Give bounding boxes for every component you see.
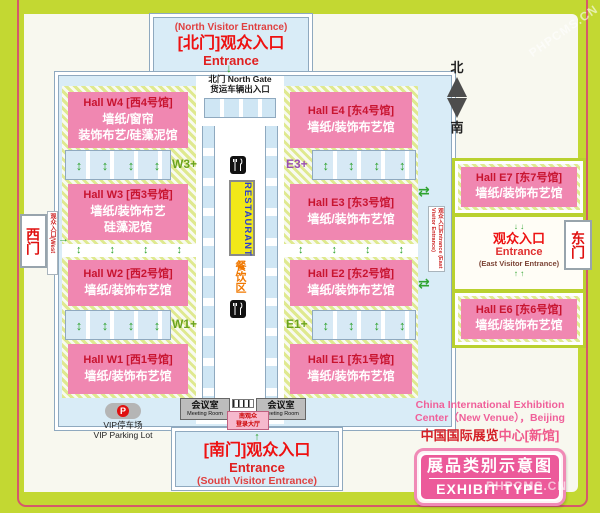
direction-arrow-icon: ↕: [323, 159, 330, 172]
hall-w4: Hall W4 [西4号馆] 墙纸/窗帘 装饰布艺/硅藻泥馆: [68, 92, 188, 148]
compass: 北 南: [442, 60, 472, 135]
hall-w1: Hall W1 [西1号馆] 墙纸/装饰布艺馆: [68, 344, 188, 394]
hall-e6-title: Hall E6 [东6号馆]: [461, 303, 577, 318]
north-arrow-icon: [447, 77, 467, 97]
south-arrow-icon: [447, 98, 467, 118]
direction-arrow-icon: ↕: [399, 319, 406, 332]
north-gate-arrow-icon: ↓: [226, 62, 232, 74]
hall-e3-title: Hall E3 [东3号馆]: [290, 195, 412, 211]
turnstile-row: [232, 399, 254, 408]
direction-arrow-icon: ↕: [154, 319, 161, 332]
south-registration-line2: 登录大厅: [228, 421, 268, 429]
stall-lane-left: [202, 126, 215, 398]
meeting-room-cn: 会议室: [257, 400, 305, 411]
hall-w3-sub2: 硅藻泥馆: [68, 219, 188, 235]
north-entrance-subtitle: (North Visitor Entrance): [153, 22, 309, 34]
hall-e6-block: Hall E6 [东6号馆] 墙纸/装饰布艺馆: [452, 290, 586, 348]
hall-e2-title: Hall E2 [东2号馆]: [290, 266, 412, 282]
direction-arrow-icon: ↕: [348, 319, 355, 332]
south-registration-line1: 南观众: [228, 413, 268, 421]
east-visitor-entrance-note: 观众入口Entrance (East Visitor Entrance): [428, 206, 445, 272]
label-w1-plus: W1+: [172, 317, 197, 331]
west-corridor-lower: ↕ ↕ ↕ ↕: [65, 310, 171, 340]
compass-south-label: 南: [442, 120, 472, 135]
hall-e1: Hall E1 [东1号馆] 墙纸/装饰布艺馆: [290, 344, 412, 394]
east-entrance-arrows-icon: ↑ ↑: [458, 269, 580, 278]
hall-e7: Hall E7 [东7号馆] 墙纸/装饰布艺馆: [461, 167, 577, 207]
hall-w3: Hall W3 [西3号馆] 墙纸/装饰布艺 硅藻泥馆: [68, 184, 188, 240]
hall-e6: Hall E6 [东6号馆] 墙纸/装饰布艺馆: [461, 299, 577, 339]
west-entrance-arrow-icon: →: [58, 234, 69, 245]
direction-arrow-icon: ↕: [298, 245, 304, 256]
watermark: PHPCMS.CN: [486, 479, 567, 493]
restaurant-icon: [230, 156, 246, 179]
label-e3-plus: E3+: [286, 157, 308, 171]
west-gate-sign: 西门: [20, 214, 47, 268]
venue-name-cn: 中国国际展览中心[新馆]: [402, 427, 578, 445]
hall-e4: Hall E4 [东4号馆] 墙纸/装饰布艺馆: [290, 92, 412, 148]
direction-arrow-icon: ↕: [374, 159, 381, 172]
east-gate-sign: 东门: [564, 220, 592, 270]
south-registration-hall: 南观众 登录大厅: [227, 411, 269, 430]
south-entrance-label: Entrance: [175, 460, 339, 475]
hall-w1-title: Hall W1 [西1号馆]: [68, 352, 188, 368]
hall-w4-title: Hall W4 [西4号馆]: [68, 95, 188, 111]
direction-arrow-icon: ↕: [374, 319, 381, 332]
hall-w4-sub2: 装饰布艺/硅藻泥馆: [68, 127, 188, 143]
exhibit-type-badge: 展品类别示意图 EXHIBIT TYPE: [414, 448, 566, 506]
central-corridor: RESTAURANT 餐饮区: [196, 76, 284, 424]
vip-parking-cn: VIP停车场: [82, 420, 164, 430]
hall-e7-block: Hall E7 [东7号馆] 墙纸/装饰布艺馆: [452, 158, 586, 216]
hall-e6-sub1: 墙纸/装饰布艺馆: [461, 318, 577, 333]
direction-arrow-icon: ↕: [76, 159, 83, 172]
direction-arrow-icon: ↕: [399, 245, 405, 256]
venue-name-cn-pink: 中心[新馆]: [499, 428, 560, 443]
restaurant-icon: [230, 300, 246, 323]
hall-e1-title: Hall E1 [东1号馆]: [290, 352, 412, 368]
venue-name-en1: China International Exhibition: [402, 399, 578, 412]
hall-e3-sub1: 墙纸/装饰布艺馆: [290, 211, 412, 227]
east-corridor-lower: ↕ ↕ ↕ ↕: [312, 310, 416, 340]
west-cross-aisle: ↕ ↕ ↕ ↕: [62, 244, 196, 257]
restaurant-sign: RESTAURANT: [229, 180, 255, 256]
hall-e4-title: Hall E4 [东4号馆]: [290, 103, 412, 119]
hall-e2-sub1: 墙纸/装饰布艺馆: [290, 282, 412, 298]
compass-north-label: 北: [442, 60, 472, 75]
east-entrance-cn: 观众入口: [458, 231, 580, 246]
south-entrance-arrow-icon: ↑: [175, 432, 339, 442]
badge-title-cn: 展品类别示意图: [421, 457, 559, 477]
meeting-room-left: 会议室 Meeting Room: [180, 398, 230, 420]
south-entrance-title: [南门]观众入口: [175, 442, 339, 460]
venue-name-cn-red: 中国国际展览: [421, 428, 499, 443]
venue-caption: China International Exhibition Center（Ne…: [402, 399, 578, 445]
food-zone-label: 餐饮区: [233, 260, 246, 293]
hall-w4-sub1: 墙纸/窗帘: [68, 111, 188, 127]
hall-w3-sub1: 墙纸/装饰布艺: [68, 203, 188, 219]
direction-arrow-icon: ↕: [102, 159, 109, 172]
hall-e4-sub1: 墙纸/装饰布艺馆: [290, 119, 412, 135]
vip-parking-en: VIP Parking Lot: [82, 430, 164, 440]
direction-arrow-icon: ↕: [399, 159, 406, 172]
direction-arrow-icon: ↕: [102, 319, 109, 332]
hall-e3: Hall E3 [东3号馆] 墙纸/装饰布艺馆: [290, 184, 412, 240]
stall-row: [204, 98, 276, 118]
meeting-room-cn: 会议室: [181, 400, 229, 411]
meeting-room-en: Meeting Room: [181, 411, 229, 418]
stall-lane-right: [265, 126, 278, 398]
label-e1-plus: E1+: [286, 317, 308, 331]
direction-arrow-icon: ↕: [365, 245, 371, 256]
direction-arrow-icon: ↕: [332, 245, 338, 256]
east-entrance-en: Entrance: [458, 246, 580, 259]
hall-w2: Hall W2 [西2号馆] 墙纸/装饰布艺馆: [68, 260, 188, 306]
west-corridor-upper: ↕ ↕ ↕ ↕: [65, 150, 171, 180]
direction-arrow-icon: ↕: [76, 319, 83, 332]
east-connection-arrow-icon: ⇄: [418, 184, 430, 198]
direction-arrow-icon: ↕: [323, 319, 330, 332]
hall-w2-sub1: 墙纸/装饰布艺馆: [68, 282, 188, 298]
east-connection-arrow-icon: ⇄: [418, 276, 430, 290]
direction-arrow-icon: ↕: [143, 245, 149, 256]
hall-w3-title: Hall W3 [西3号馆]: [68, 187, 188, 203]
hall-e1-sub1: 墙纸/装饰布艺馆: [290, 368, 412, 384]
direction-arrow-icon: ↕: [154, 159, 161, 172]
direction-arrow-icon: ↕: [177, 245, 183, 256]
hall-w2-title: Hall W2 [西2号馆]: [68, 266, 188, 282]
north-entrance-title: [北门]观众入口: [153, 34, 309, 53]
label-w3-plus: W3+: [172, 157, 197, 171]
direction-arrow-icon: ↕: [110, 245, 116, 256]
direction-arrow-icon: ↕: [348, 159, 355, 172]
venue-name-en2: Center（New Venue），Beijing: [402, 412, 578, 425]
vip-parking-label: VIP停车场 VIP Parking Lot: [82, 420, 164, 440]
hall-e7-title: Hall E7 [东7号馆]: [461, 171, 577, 186]
south-entrance-bay: ↑ [南门]观众入口 Entrance (South Visitor Entra…: [172, 428, 342, 490]
east-cross-aisle: ↕ ↕ ↕ ↕: [284, 244, 418, 257]
exhibition-floor-map: (North Visitor Entrance) [北门]观众入口 Entran…: [0, 0, 600, 513]
parking-icon: P: [117, 405, 129, 417]
hall-e7-sub1: 墙纸/装饰布艺馆: [461, 186, 577, 201]
east-corridor-upper: ↕ ↕ ↕ ↕: [312, 150, 416, 180]
north-gate-line1: 北门 North Gate: [190, 74, 290, 84]
direction-arrow-icon: ↕: [76, 245, 82, 256]
north-gate-line2: 货运车辆出入口: [190, 84, 290, 94]
north-gate-note: 北门 North Gate 货运车辆出入口: [190, 74, 290, 94]
south-entrance-subtitle: (South Visitor Entrance): [175, 475, 339, 487]
hall-w1-sub1: 墙纸/装饰布艺馆: [68, 368, 188, 384]
vip-parking-tab: P: [105, 403, 141, 419]
east-entrance-sub: (East Visitor Entrance): [458, 259, 580, 269]
direction-arrow-icon: ↕: [128, 319, 135, 332]
hall-e2: Hall E2 [东2号馆] 墙纸/装饰布艺馆: [290, 260, 412, 306]
direction-arrow-icon: ↕: [128, 159, 135, 172]
west-visitor-entrance-note: 观众入口(West Visitor Entrance): [47, 211, 58, 275]
east-entrance-arrows-icon: ↓ ↓: [458, 223, 580, 231]
